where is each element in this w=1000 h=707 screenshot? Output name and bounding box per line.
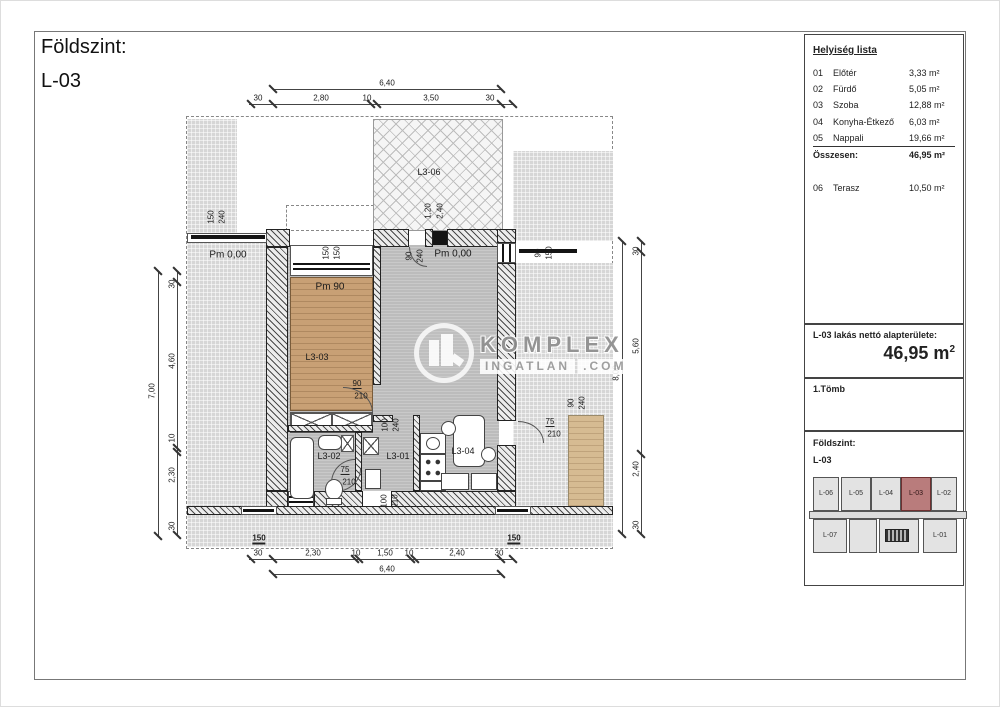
- room-name: Terasz: [833, 180, 909, 196]
- key-plan: L-06L-05L-04L-03L-02L-07L-01: [813, 477, 959, 557]
- room-num: 04: [813, 114, 833, 130]
- dimension-line: [641, 241, 642, 534]
- block-box: 1.Tömb: [804, 378, 964, 431]
- key-plan-unit-blank: [849, 519, 877, 553]
- dim-label: 210: [354, 392, 367, 401]
- dim-label: 30: [254, 94, 263, 103]
- dim-label: 10: [405, 549, 414, 558]
- window-glass-line: [293, 263, 370, 265]
- key-plan-corridor: [809, 511, 967, 519]
- dim-label: L3-03: [305, 352, 328, 362]
- room-row: 02Fürdő5,05 m²: [813, 81, 955, 97]
- room-area: 3,33 m²: [909, 65, 955, 81]
- dim-label: 75: [341, 465, 350, 475]
- dim-label: 90: [534, 249, 543, 258]
- stairs-icon: [885, 529, 909, 542]
- toilet: [325, 479, 343, 500]
- wall-segment: [373, 229, 409, 247]
- dim-label: 1,50: [377, 549, 393, 558]
- room-row: 03Szoba12,88 m²: [813, 97, 955, 113]
- dim-label: 10: [363, 94, 372, 103]
- key-plan-unit-label: L-03: [813, 455, 955, 465]
- key-plan-unit-l-05: L-05: [841, 477, 871, 511]
- dim-label: 75: [546, 417, 555, 427]
- dim-label: 150: [322, 246, 331, 259]
- neighbor-terrace-floor: [568, 415, 604, 507]
- wall-segment: [497, 445, 516, 491]
- dim-label: 30: [168, 522, 177, 531]
- dimension-line: [249, 104, 513, 105]
- shower-unit: [341, 435, 354, 452]
- dim-label: 2,30: [168, 467, 177, 483]
- dim-label: 210: [547, 430, 560, 439]
- net-area-value: 46,95 m2: [813, 343, 955, 364]
- dim-label: 30: [168, 280, 177, 289]
- dim-label: 240: [392, 418, 401, 431]
- key-plan-unit-l-07: L-07: [813, 519, 847, 553]
- dim-label: 100: [380, 494, 389, 507]
- chair: [441, 421, 456, 436]
- room-list-title: Helyiség lista: [813, 45, 955, 56]
- key-plan-unit-l-02: L-02: [931, 477, 957, 511]
- room-name: Szoba: [833, 97, 909, 113]
- toilet-tank: [326, 498, 342, 505]
- dim-label: 30: [486, 94, 495, 103]
- key-plan-unit-l-03: L-03: [901, 477, 931, 511]
- room-row: 05Nappali19,66 m²: [813, 130, 955, 147]
- dimension-line: [622, 241, 623, 534]
- wall-segment: [266, 247, 288, 491]
- dim-label: 30: [632, 247, 641, 256]
- dim-label: 3,50: [423, 94, 439, 103]
- window-glass-line: [502, 244, 504, 262]
- dim-label: 150: [545, 246, 554, 259]
- dim-label: Pm 0,00: [209, 250, 246, 261]
- dimension-line: [249, 559, 513, 560]
- water-heater: [363, 437, 379, 455]
- key-plan-floor-label: Földszint:: [813, 438, 955, 449]
- drawing-sheet: Földszint: L-03: [0, 0, 1000, 707]
- window-recess: [290, 245, 373, 276]
- dim-label: 30: [495, 549, 504, 558]
- neighbor-area: [513, 151, 613, 241]
- watermark-brand: KOMPLEX: [480, 332, 631, 358]
- dim-label: Pm 0,00: [434, 249, 471, 260]
- dim-label: 2,40: [449, 549, 465, 558]
- dim-label: Pm 90: [316, 282, 345, 293]
- dim-label: 2,30: [305, 549, 321, 558]
- wall-segment: [266, 229, 290, 247]
- dim-label: 6,40: [379, 565, 395, 574]
- dim-label: L3-04: [451, 446, 474, 456]
- dimension-line: [177, 271, 178, 536]
- block-label: 1.Tömb: [813, 384, 845, 394]
- dimension-line: [273, 89, 501, 90]
- watermark-text: KOMPLEX INGATLAN .COM: [480, 332, 631, 374]
- dim-label: 90: [567, 399, 576, 408]
- key-plan-unit-l-04: L-04: [871, 477, 901, 511]
- neighbor-area: [187, 241, 266, 509]
- dim-label: 2,80: [313, 94, 329, 103]
- wall-segment: [497, 229, 516, 243]
- room-area: 5,05 m²: [909, 81, 955, 97]
- watermark-logo-icon: [414, 323, 474, 383]
- roof-overhang-outline: [286, 205, 374, 231]
- dim-label: 90: [353, 379, 362, 389]
- wall-segment: [373, 247, 381, 385]
- dim-label: 150: [333, 246, 342, 259]
- dim-label: 150: [507, 534, 520, 545]
- dimension-line: [158, 271, 159, 536]
- window-opening: [497, 243, 516, 263]
- dim-label: 150: [207, 210, 216, 223]
- dim-label: 30: [632, 521, 641, 530]
- dim-label: 1,20: [424, 203, 433, 219]
- dim-label: L3-01: [386, 451, 409, 461]
- room-name: Előtér: [833, 65, 909, 81]
- kitchen-counter: [441, 473, 469, 490]
- dim-label: 7,00: [148, 383, 157, 399]
- room-area: 6,03 m²: [909, 114, 955, 130]
- room-name: Fürdő: [833, 81, 909, 97]
- room-name: Nappali: [833, 130, 909, 146]
- wall-segment: [288, 425, 373, 432]
- window-glass-line: [191, 235, 265, 239]
- room-row: 01Előtér3,33 m²: [813, 65, 955, 81]
- dim-label: L3-02: [317, 451, 340, 461]
- key-plan-unit-l-06: L-06: [813, 477, 839, 511]
- dim-label: 30: [254, 549, 263, 558]
- dim-label: 100: [381, 418, 390, 431]
- dim-label: 2,40: [436, 203, 445, 219]
- window-block: [433, 231, 447, 245]
- bathroom-sink: [318, 435, 342, 450]
- kitchen-sink: [420, 433, 446, 454]
- dim-label: 210: [342, 478, 355, 487]
- dim-label: 5,60: [632, 338, 641, 354]
- room-num: 01: [813, 65, 833, 81]
- room-num: 03: [813, 97, 833, 113]
- dim-label: L3-06: [417, 167, 440, 177]
- room-list-total-row: Összesen: 46,95 m²: [813, 147, 955, 164]
- room-list-rows: 01Előtér3,33 m²02Fürdő5,05 m²03Szoba12,8…: [813, 65, 955, 147]
- hall-closet: [365, 469, 381, 489]
- watermark-tld: .COM: [578, 359, 631, 374]
- room-num: 05: [813, 130, 833, 146]
- room-name: Konyha-Étkező: [833, 114, 909, 130]
- dim-label: 2,40: [632, 461, 641, 477]
- window-glass-line: [243, 509, 274, 512]
- dim-label: 4,60: [168, 353, 177, 369]
- room-row: 04Konyha-Étkező6,03 m²: [813, 114, 955, 130]
- room-num: 06: [813, 180, 833, 196]
- room-row-terasz: 06 Terasz 10,50 m²: [813, 180, 955, 196]
- wall-segment: [413, 415, 420, 491]
- key-plan-box: Földszint: L-03 L-06L-05L-04L-03L-02L-07…: [804, 431, 964, 586]
- dim-label: 240: [578, 396, 587, 409]
- net-area-label: L-03 lakás nettó alapterülete:: [813, 330, 955, 340]
- dim-label: 6,40: [379, 79, 395, 88]
- dim-label: 10: [168, 434, 177, 443]
- window-glass-line: [509, 244, 511, 262]
- dim-label: 210: [391, 494, 400, 507]
- window-glass-line: [293, 268, 370, 270]
- total-label: Összesen:: [813, 147, 909, 164]
- bathtub: [290, 437, 314, 499]
- dim-label: 10: [352, 549, 361, 558]
- room-list-box: Helyiség lista 01Előtér3,33 m²02Fürdő5,0…: [804, 34, 964, 324]
- dim-label: 240: [416, 249, 425, 262]
- dim-label: 150: [252, 534, 265, 545]
- dimension-line: [273, 574, 501, 575]
- room-area: 10,50 m²: [909, 180, 955, 196]
- dining-table: [453, 415, 485, 467]
- watermark: KOMPLEX INGATLAN .COM: [414, 323, 614, 383]
- room-num: 02: [813, 81, 833, 97]
- fridge: [471, 473, 497, 490]
- watermark-sub: INGATLAN: [480, 359, 575, 374]
- chair: [481, 447, 496, 462]
- wall-segment: [425, 229, 433, 247]
- total-value: 46,95 m²: [909, 147, 955, 164]
- room-area: 12,88 m²: [909, 97, 955, 113]
- room-area: 19,66 m²: [909, 130, 955, 146]
- net-area-box: L-03 lakás nettó alapterülete: 46,95 m2: [804, 324, 964, 378]
- window-glass-line: [497, 509, 528, 512]
- dim-label: 90: [405, 252, 414, 261]
- key-plan-unit-l-01: L-01: [923, 519, 957, 553]
- dim-label: 240: [218, 210, 227, 223]
